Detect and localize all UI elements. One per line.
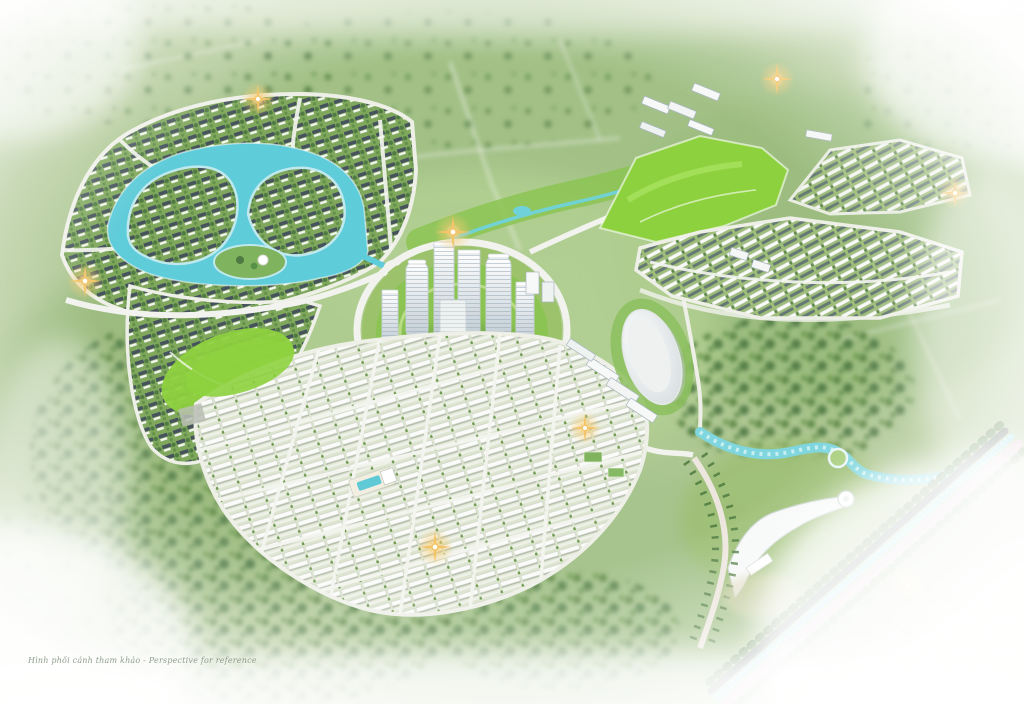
render-caption: Hình phối cảnh tham khảo - Perspective f… [28, 656, 328, 665]
white-vignette [0, 0, 1024, 704]
masterplan-render: Hình phối cảnh tham khảo - Perspective f… [0, 0, 1024, 704]
aerial-scene [0, 0, 1024, 704]
